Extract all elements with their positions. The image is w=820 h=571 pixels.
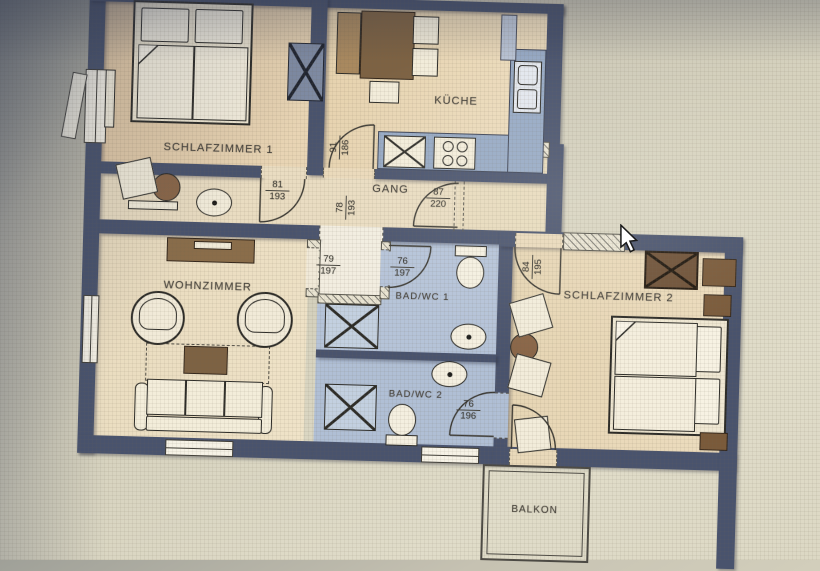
door-dimension-kueche: 91186 — [328, 135, 352, 160]
wardrobe-icon — [644, 251, 699, 290]
fridge-icon — [513, 61, 542, 114]
dining-bench — [336, 12, 362, 75]
toilet-icon — [383, 401, 418, 446]
mattress — [192, 46, 248, 121]
chair-icon — [412, 48, 439, 77]
coffee-table — [183, 346, 228, 375]
nightstand — [703, 294, 732, 317]
double-bed-icon — [130, 0, 253, 125]
desk — [128, 200, 178, 210]
door-opening-gang-lower — [319, 225, 383, 241]
shower-icon — [324, 304, 379, 349]
room-label-badwc1: BAD/WC 1 — [383, 290, 461, 303]
mattress-fold — [138, 44, 159, 65]
door-opening-schlafzimmer1 — [261, 166, 307, 179]
room-label-kueche: KÜCHE — [416, 94, 496, 108]
door-dimension-schlafzimmer1: 81193 — [265, 179, 290, 203]
window-wohnzimmer-bottom — [165, 439, 233, 457]
photo-stage: SCHLAFZIMMER 1 KÜCHE GANG WOHNZIMMER BAD… — [0, 0, 820, 560]
chair-icon — [514, 416, 552, 454]
door-dimension-entry: 87220 — [426, 186, 451, 210]
chair-icon — [413, 16, 440, 45]
chair-icon — [369, 81, 400, 104]
radiator — [104, 69, 116, 127]
floorplan: SCHLAFZIMMER 1 KÜCHE GANG WOHNZIMMER BAD… — [0, 0, 820, 571]
door-opening-schlafzimmer2 — [515, 233, 563, 248]
pillow — [695, 326, 722, 373]
double-bed-icon — [608, 316, 729, 437]
pillow — [195, 9, 244, 44]
wardrobe-icon — [702, 258, 737, 287]
nightstand — [699, 432, 727, 451]
mouse-cursor-icon — [619, 224, 639, 254]
shaft-icon — [287, 43, 325, 102]
window-wohnzimmer-left — [82, 295, 100, 363]
window-badwc2-bottom — [421, 446, 479, 464]
mattress-fold — [615, 321, 636, 342]
room-label-balkon: BALKON — [499, 504, 569, 517]
mattress — [613, 376, 696, 432]
pillow — [693, 378, 720, 425]
wall-schlafzimmer2-top-hatched — [563, 232, 625, 252]
pillow — [141, 7, 190, 42]
toilet-icon — [452, 245, 487, 290]
sideboard — [166, 237, 255, 263]
stove-icon — [433, 137, 476, 170]
room-label-badwc2: BAD/WC 2 — [377, 388, 455, 401]
door-dimension-gang-lower: 78193 — [334, 195, 358, 220]
shower-icon — [324, 384, 377, 431]
dining-table — [360, 11, 416, 80]
door-dimension-badwc2: 76196 — [456, 398, 481, 422]
desk-chair-icon — [115, 157, 158, 200]
sofa-icon — [134, 378, 273, 436]
wall-kueche-right — [544, 4, 564, 156]
door-dimension-wohnzimmer: 79197 — [316, 253, 341, 277]
door-opening-badwc1 — [380, 249, 389, 287]
room-label-gang: GANG — [350, 182, 430, 196]
kitchen-cabinet — [500, 14, 517, 60]
door-opening-entry — [453, 181, 464, 231]
door-dimension-badwc1: 76197 — [390, 255, 415, 279]
door-dimension-schlafzimmer2: 84195 — [521, 255, 545, 280]
floorplan-photo: { "rooms": { "schlafzimmer1": {"label": … — [0, 0, 820, 560]
kitchen-sink-icon — [383, 135, 426, 168]
door-opening-kueche — [323, 168, 375, 179]
door-opening-badwc2 — [494, 392, 509, 438]
